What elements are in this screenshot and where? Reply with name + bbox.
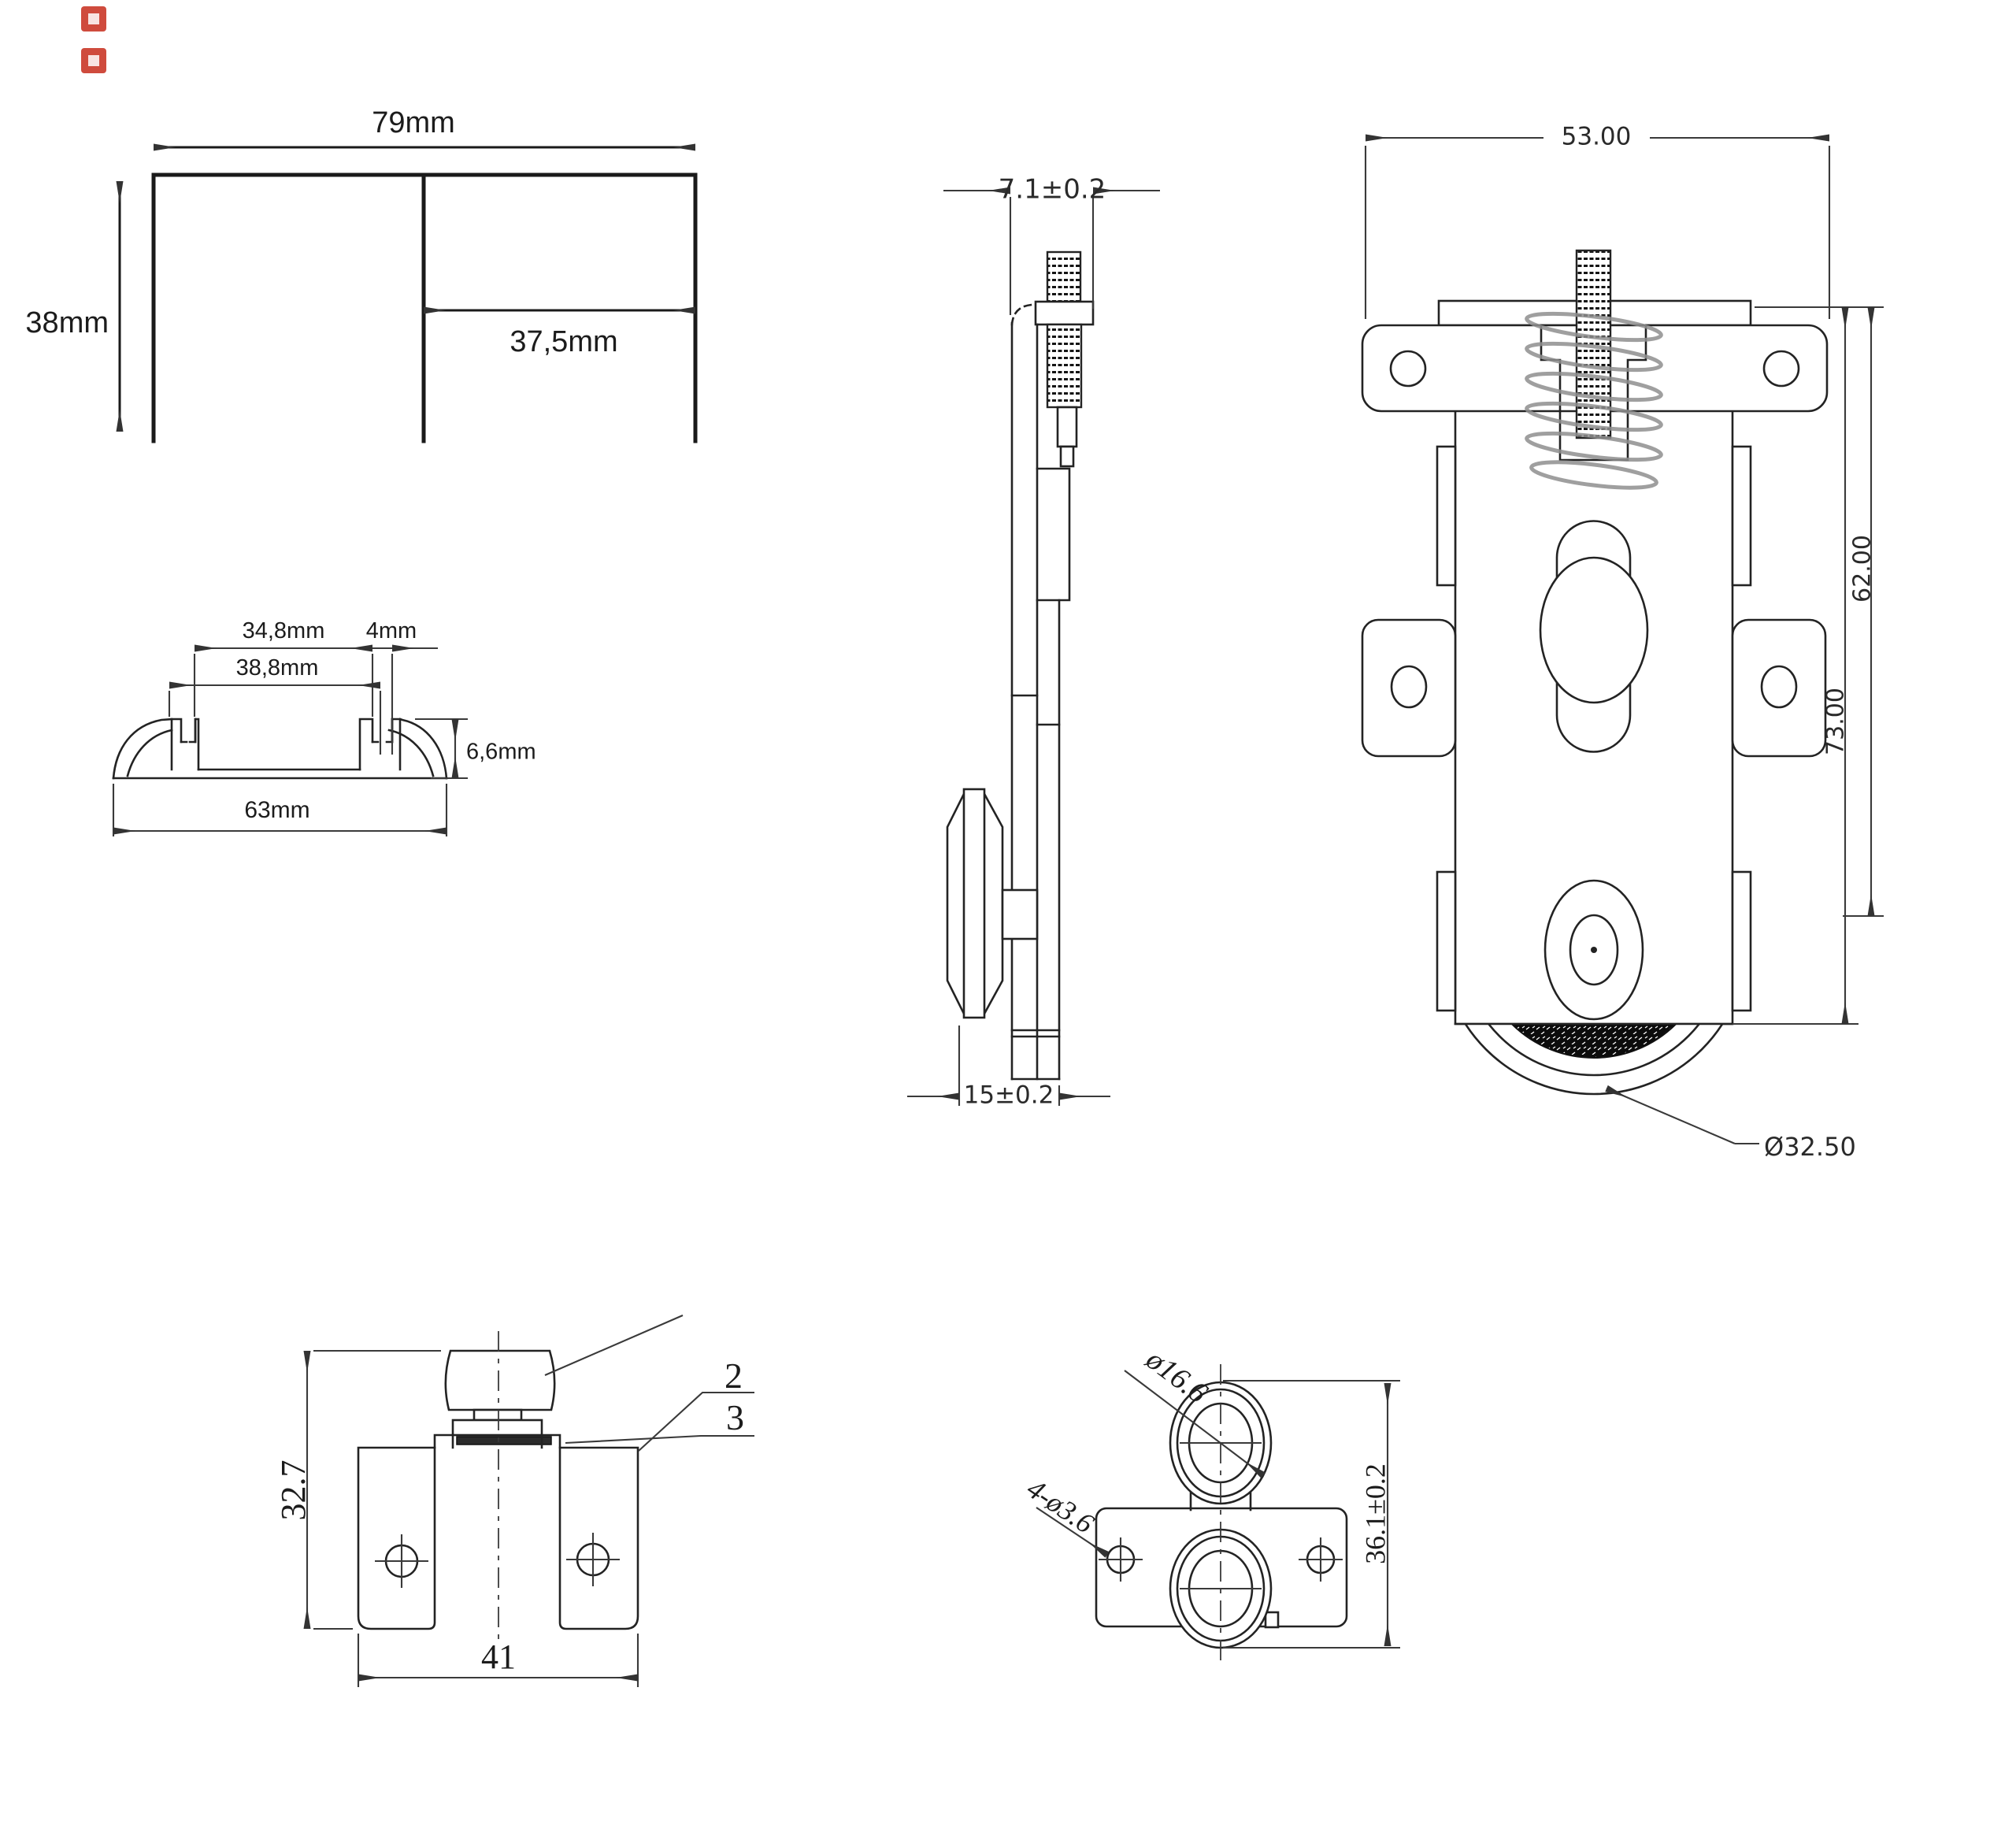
dim-label-4-3-6: 4-ø3.6: [1021, 1472, 1099, 1539]
dim-label-36-1: 36.1±0.2: [1359, 1463, 1391, 1564]
dim-wheel-dia-32-5: Ø32.50: [1606, 1089, 1856, 1162]
dim-height-6-6: 6,6mm: [415, 719, 536, 778]
side-wheel: [947, 789, 1037, 1018]
dim-label-15: 15±0.2: [964, 1081, 1054, 1110]
callout-label-3: 3: [726, 1397, 744, 1437]
callout-label-2: 2: [724, 1356, 743, 1396]
fig-top-track-channel: 79mm 38mm 37,5mm: [25, 106, 695, 441]
technical-drawing-page: 79mm 38mm 37,5mm: [0, 0, 2016, 1847]
channel-outline: [154, 175, 695, 441]
front-adjust-slot: [1540, 521, 1647, 752]
dim-total-63: 63mm: [113, 784, 447, 836]
drawing-canvas: 79mm 38mm 37,5mm: [0, 0, 2016, 1847]
fig-roller-side-view: 7.1±0.2 15±0.2: [907, 174, 1160, 1110]
fig-double-roller-guide: ø16.6 4-ø3.6 36.1±0.2: [1021, 1342, 1400, 1663]
fig-bottom-track-profile: 34,8mm 4mm 38,8mm 6,6mm 63mm: [113, 618, 536, 836]
dim-label-79mm: 79mm: [372, 106, 455, 139]
side-stud-and-nut: [1036, 252, 1093, 466]
dim-height-38: 38mm: [25, 181, 120, 432]
callout-leader-wheel: [545, 1315, 683, 1375]
dim-label-38mm: 38mm: [25, 306, 109, 339]
dim-inner-span-38-8: 38,8mm: [169, 655, 380, 755]
dim-label-63mm: 63mm: [244, 797, 309, 823]
profile-outline: [113, 719, 447, 778]
front-body: [1437, 411, 1751, 1024]
dim-label-37-5mm: 37,5mm: [510, 325, 617, 358]
dim-label-38-8mm: 38,8mm: [236, 655, 319, 681]
dim-label-62: 62.00: [1849, 535, 1877, 603]
dim-inner-37-5: 37,5mm: [424, 310, 695, 358]
dim-holes-4x3-6: 4-ø3.6: [1021, 1472, 1107, 1555]
dim-label-34-8mm: 34,8mm: [243, 618, 325, 643]
dim-label-32-5: Ø32.50: [1764, 1132, 1856, 1162]
dim-body-width-15: 15±0.2: [907, 1025, 1110, 1110]
glitch-icon: [81, 6, 106, 73]
dim-bracket-width-41: 41: [358, 1634, 638, 1687]
bracket-wheel: [446, 1351, 555, 1420]
bracket-callouts: 2 3: [545, 1315, 754, 1451]
dim-label-41: 41: [481, 1637, 516, 1676]
fig-lower-guide-bracket: 32.7 41 2 3: [274, 1315, 754, 1687]
bracket-screw-holes: [375, 1533, 620, 1588]
dim-width-79: 79mm: [154, 106, 695, 147]
dim-label-7-1: 7.1±0.2: [999, 174, 1106, 206]
front-axle: [1545, 881, 1643, 1019]
dim-label-4mm: 4mm: [366, 618, 417, 643]
dim-label-53: 53.00: [1562, 123, 1632, 151]
dim-label-32-7: 32.7: [274, 1460, 313, 1521]
front-wheel: [1441, 788, 1747, 1094]
fig-roller-front-view: 53.00 62.00 73.00 Ø32.50: [1362, 123, 1884, 1163]
dim-label-6-6mm: 6,6mm: [466, 740, 536, 765]
dim-label-73: 73.00: [1822, 688, 1850, 755]
